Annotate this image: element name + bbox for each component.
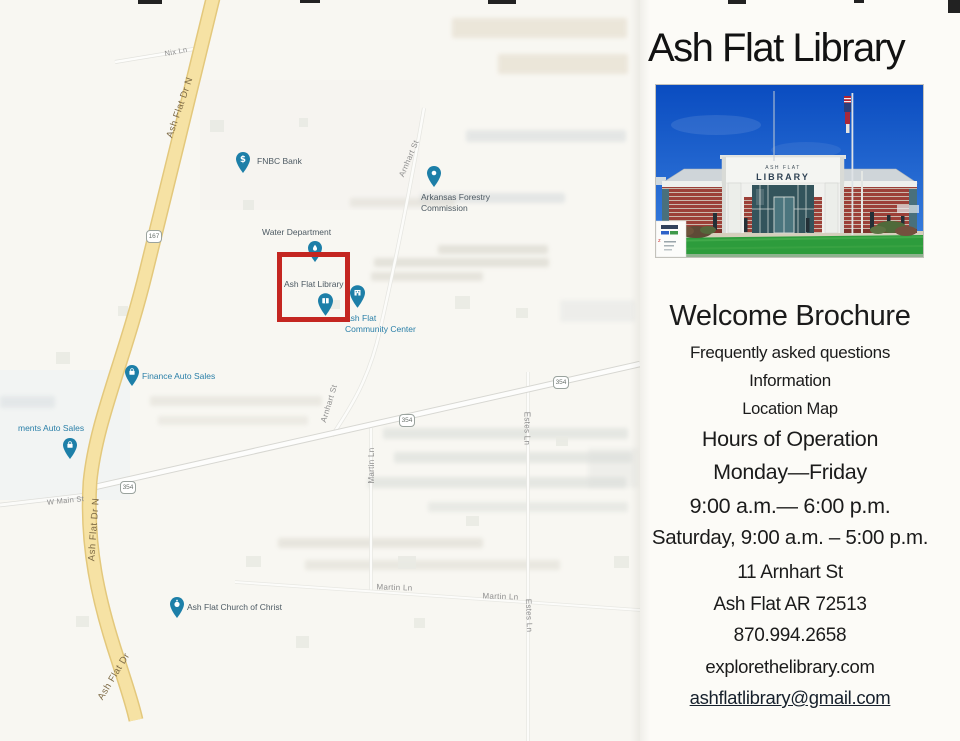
poi-label-community-center-line2: Community Center — [345, 324, 416, 335]
information-line: Information — [630, 371, 950, 391]
street-label-martin-ln-vertical: Martin Ln — [367, 438, 376, 493]
street-label-martin-ln: Martin Ln — [367, 582, 422, 593]
photo-sign-line1-text: ASH FLAT — [765, 165, 801, 171]
saturday-hours-line: Saturday, 9:00 a.m. – 5:00 p.m. — [630, 526, 950, 550]
route-shield-354-number: 354 — [556, 379, 567, 386]
street-label-estes-ln: Estes Ln — [523, 404, 532, 454]
poi-label-fnbc-bank: FNBC Bank — [257, 156, 302, 167]
photo-sign-line2-text: LIBRARY — [756, 172, 810, 182]
scan-artifact — [488, 0, 516, 4]
poi-label-water-department: Water Department — [262, 227, 331, 238]
route-shield-354-number: 354 — [402, 417, 413, 424]
poi-label-community-center: Ash Flat Community Center — [345, 313, 416, 334]
page-title: Ash Flat Library — [648, 26, 948, 71]
map-pin-arkansas-forestry — [427, 166, 441, 187]
route-shield-354: 354 — [120, 481, 136, 494]
email-link-row: ashflatlibrary@gmail.com — [630, 687, 950, 709]
route-shield-167-number: 167 — [149, 233, 160, 240]
route-shield-354: 354 — [399, 414, 415, 427]
map-roads — [0, 0, 640, 741]
svg-text:z: z — [658, 238, 661, 244]
poi-label-arkansas-forestry: Arkansas Forestry Commission — [421, 192, 490, 213]
address-city-line: Ash Flat AR 72513 — [630, 594, 950, 616]
hours-heading: Hours of Operation — [630, 427, 950, 452]
poi-label-arkansas-forestry-line2: Commission — [421, 203, 490, 214]
poi-label-arkansas-forestry-line1: Arkansas Forestry — [421, 192, 490, 203]
days-line: Monday—Friday — [630, 460, 950, 485]
map-panel: Nix Ln Ash Flat Dr N Ash Flat Dr N Ash F… — [0, 0, 640, 741]
route-shield-354: 354 — [553, 376, 569, 389]
route-shield-354-number: 354 — [123, 484, 134, 491]
brochure-scan: Nix Ln Ash Flat Dr N Ash Flat Dr N Ash F… — [0, 0, 960, 741]
scan-artifact — [300, 0, 320, 3]
poi-label-ments-auto-sales: ments Auto Sales — [18, 423, 84, 434]
weekday-hours-line: 9:00 a.m.— 6:00 p.m. — [630, 494, 950, 519]
faq-line: Frequently asked questions — [630, 343, 950, 363]
scan-artifact — [948, 0, 960, 13]
scan-artifact — [138, 0, 162, 4]
scan-artifact — [854, 0, 864, 3]
poi-label-church-of-christ: Ash Flat Church of Christ — [187, 602, 282, 613]
location-map-line: Location Map — [630, 400, 950, 419]
poi-label-community-center-line1: Ash Flat — [345, 313, 416, 324]
map-pin-fnbc-bank: $ — [236, 152, 250, 173]
map-pin-finance-auto-sales — [125, 365, 139, 386]
website-line: explorethelibrary.com — [630, 656, 950, 678]
map-pin-community-center — [350, 285, 364, 306]
poi-label-finance-auto-sales: Finance Auto Sales — [142, 371, 215, 382]
map-pin-ments-auto-sales — [63, 438, 77, 459]
library-photo: ASH FLAT LIBRARY — [656, 85, 923, 257]
email-link[interactable]: ashflatlibrary@gmail.com — [690, 687, 891, 708]
street-label-martin-ln-east: Martin Ln — [473, 591, 528, 602]
map-pin-church-of-christ — [170, 597, 184, 618]
library-highlight-box — [277, 252, 350, 322]
welcome-heading: Welcome Brochure — [630, 300, 950, 333]
address-street-line: 11 Arnhart St — [630, 562, 950, 584]
street-label-estes-ln-south: Estes Ln — [524, 590, 535, 640]
route-shield-167: 167 — [146, 230, 162, 243]
phone-line: 870.994.2658 — [630, 625, 950, 647]
scan-artifact — [728, 0, 746, 4]
svg-text:$: $ — [240, 155, 246, 165]
